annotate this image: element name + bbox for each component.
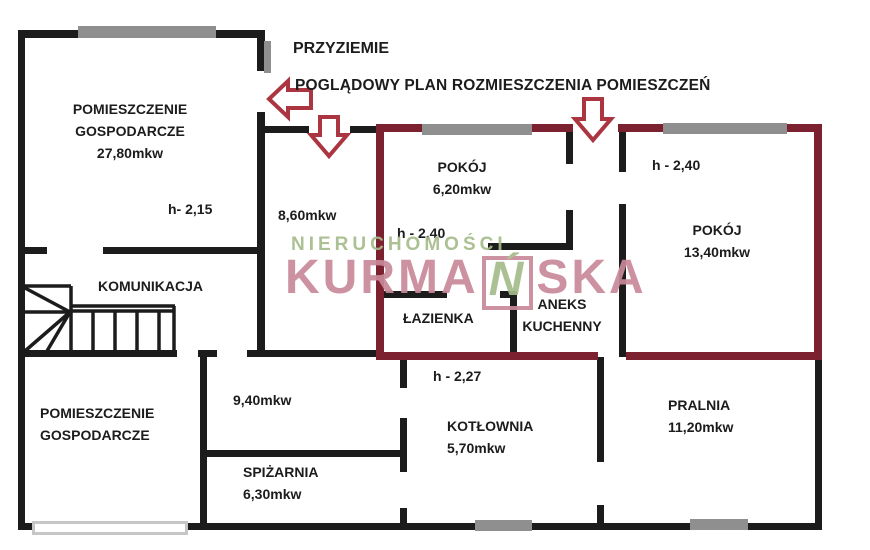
floorplan-canvas: PRZYZIEMIE POGLĄDOWY PLAN ROZMIESZCZENIA… xyxy=(0,0,870,550)
entrance-arrow-down-big xyxy=(575,99,611,140)
entrance-arrow-down-small xyxy=(311,117,347,156)
stairs-line xyxy=(25,312,70,351)
room-pralnia-label: PRALNIA 11,20mkw xyxy=(668,394,733,438)
height-2-40-left-label: h - 2,40 xyxy=(397,222,445,244)
area-9-40-label: 9,40mkw xyxy=(233,389,291,411)
room-kotlownia-label: KOTŁOWNIA 5,70mkw xyxy=(447,415,533,459)
stairs-line xyxy=(25,288,70,312)
height-2-40-right-label: h - 2,40 xyxy=(652,154,700,176)
room-spizarnia-label: SPIŻARNIA 6,30mkw xyxy=(243,461,318,505)
plan-subtitle: POGLĄDOWY PLAN ROZMIESZCZENIA POMIESZCZE… xyxy=(295,77,711,95)
height-2-15-label: h- 2,15 xyxy=(168,198,212,220)
room-komunikacja-label: KOMUNIKACJA xyxy=(98,275,203,297)
room-pokoj-13-40-label: POKÓJ 13,40mkw xyxy=(684,219,750,263)
room-aneks-kuchenny-label: ANEKS KUCHENNY xyxy=(522,293,601,337)
stairs-line xyxy=(47,312,70,351)
area-8-60-label: 8,60mkw xyxy=(278,204,336,226)
room-pokoj-6-20-label: POKÓJ 6,20mkw xyxy=(433,156,491,200)
room-lazienka-label: ŁAZIENKA xyxy=(403,307,474,329)
height-2-27-label: h - 2,27 xyxy=(433,365,481,387)
room-gospodarcze-top-label: POMIESZCZENIE GOSPODARCZE 27,80mkw xyxy=(73,98,187,164)
floor-title: PRZYZIEMIE xyxy=(293,40,389,58)
room-gospodarcze-bottom-label: POMIESZCZENIE GOSPODARCZE xyxy=(40,402,154,446)
